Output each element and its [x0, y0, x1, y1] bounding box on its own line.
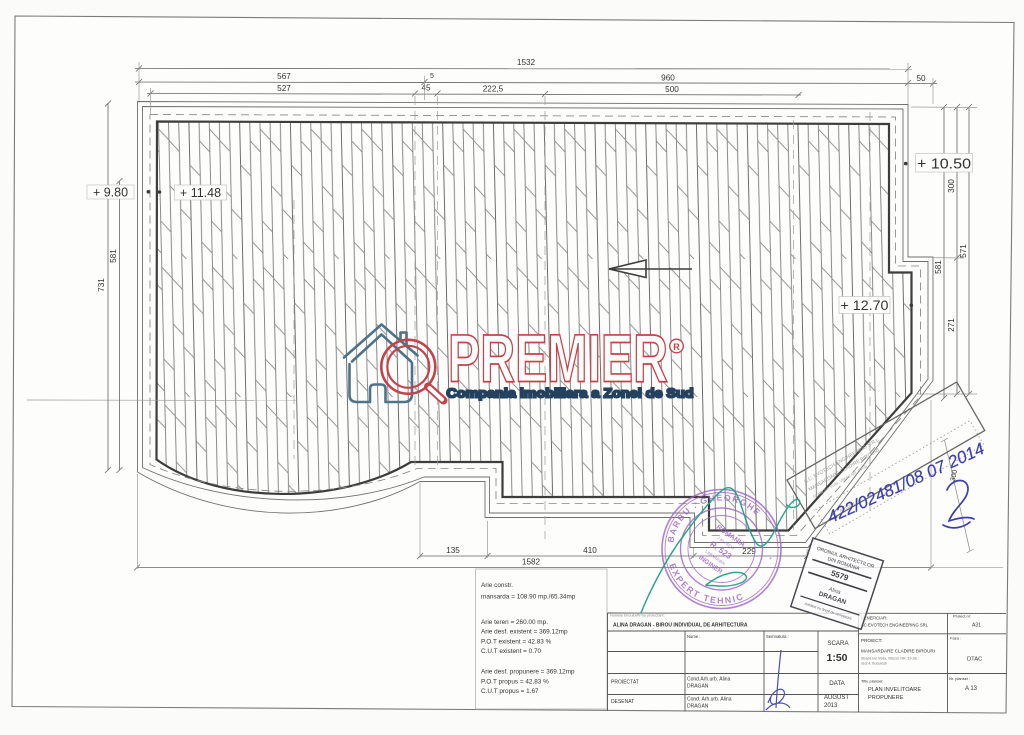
- svg-text:PROIECTAT: PROIECTAT: [611, 680, 639, 686]
- svg-text:SC EVOTECH ENGINEERING SRL: SC EVOTECH ENGINEERING SRL: [861, 623, 929, 628]
- svg-text:A 13: A 13: [965, 686, 978, 692]
- svg-text:Strada Ion Voda, Vitezul, NR.: Strada Ion Voda, Vitezul, NR. 19-28,: [861, 657, 917, 661]
- svg-text:222,5: 222,5: [483, 85, 504, 94]
- svg-text:Arie constr.: Arie constr.: [481, 582, 513, 589]
- svg-text:Proiect nr:: Proiect nr:: [953, 614, 971, 619]
- svg-text:Titlu plansei:: Titlu plansei:: [861, 679, 883, 684]
- svg-text:271: 271: [947, 318, 956, 332]
- svg-text:P.O.T propus = 42.83 %: P.O.T propus = 42.83 %: [481, 679, 549, 686]
- svg-text:DESENAT: DESENAT: [611, 699, 634, 705]
- svg-text:+ 11.48: + 11.48: [180, 186, 221, 200]
- svg-text:581: 581: [934, 260, 943, 274]
- svg-text:Nr. plansei :: Nr. plansei :: [949, 676, 970, 681]
- svg-text:1582: 1582: [522, 558, 541, 567]
- svg-text:Nume :: Nume :: [687, 634, 701, 639]
- svg-text:sect.4, Bucuresti: sect.4, Bucuresti: [861, 662, 887, 666]
- svg-text:500: 500: [665, 85, 679, 94]
- svg-text:Arie teren = 260.00 mp.: Arie teren = 260.00 mp.: [481, 619, 548, 626]
- svg-text:Compania imobiliara a Zonei de: Compania imobiliara a Zonei de Sud: [447, 386, 694, 401]
- svg-text:45: 45: [421, 84, 431, 93]
- svg-text:300: 300: [947, 179, 956, 193]
- svg-text:DRAGAN: DRAGAN: [687, 684, 709, 690]
- svg-text:DATA: DATA: [829, 680, 845, 687]
- svg-text:571: 571: [959, 244, 968, 258]
- svg-text:ALINA DRAGAN - BIROU INDIVIDUA: ALINA DRAGAN - BIROU INDIVIDUAL DE ARHIT…: [613, 623, 748, 629]
- svg-text:PLAN INVELITOARE: PLAN INVELITOARE: [868, 687, 921, 693]
- svg-text:1532: 1532: [517, 58, 536, 67]
- svg-text:527: 527: [277, 84, 291, 93]
- svg-text:Numele biroului/firma proiecta: Numele biroului/firma proiectant:: [610, 614, 665, 618]
- svg-text:1:50: 1:50: [826, 652, 847, 664]
- svg-text:410: 410: [583, 546, 597, 555]
- svg-text:Arie desf. propunere = 369.12m: Arie desf. propunere = 369.12mp: [481, 669, 575, 676]
- svg-text:Cond. Arh.urb. Alina: Cond. Arh.urb. Alina: [687, 697, 732, 703]
- svg-text:mansarda = 108.90 mp./65.34mp: mansarda = 108.90 mp./65.34mp: [481, 594, 576, 601]
- svg-text:MANSARDARE CLADIRE BIROURI: MANSARDARE CLADIRE BIROURI: [861, 649, 935, 654]
- svg-text:Faza :: Faza :: [950, 636, 961, 641]
- svg-text:R: R: [673, 342, 680, 352]
- svg-text:Cond.Arh.urb. Alina: Cond.Arh.urb. Alina: [687, 677, 731, 683]
- svg-text:731: 731: [97, 278, 106, 292]
- svg-text:P.O.T existent = 42.83 %: P.O.T existent = 42.83 %: [481, 639, 552, 646]
- svg-text:135: 135: [446, 546, 460, 555]
- svg-text:AUGUST: AUGUST: [824, 695, 849, 701]
- svg-text:Semnatura :: Semnatura :: [766, 634, 789, 639]
- svg-text:+ 10.50: + 10.50: [917, 156, 971, 173]
- svg-text:5: 5: [430, 73, 434, 80]
- svg-text:2013: 2013: [824, 703, 838, 709]
- svg-text:SCARA: SCARA: [827, 640, 849, 647]
- svg-text:+ 12.70: + 12.70: [841, 298, 889, 313]
- svg-text:567: 567: [277, 72, 291, 81]
- svg-text:PROIECT:: PROIECT:: [861, 638, 882, 643]
- svg-text:DRAGAN: DRAGAN: [687, 704, 709, 710]
- svg-text:DTAC: DTAC: [967, 657, 982, 663]
- svg-text:C.U.T propus = 1.67: C.U.T propus = 1.67: [481, 688, 539, 695]
- svg-text:A31: A31: [972, 623, 981, 629]
- svg-text:PROPUNERE: PROPUNERE: [868, 695, 904, 701]
- svg-text:C.U.T existent = 0.70: C.U.T existent = 0.70: [481, 648, 542, 655]
- svg-text:581: 581: [109, 249, 118, 263]
- svg-text:50: 50: [916, 74, 926, 83]
- svg-text:Arie desf. existent = 369.12mp: Arie desf. existent = 369.12mp: [481, 629, 568, 636]
- svg-text:+ 9.80: + 9.80: [93, 186, 128, 200]
- svg-text:960: 960: [661, 74, 675, 83]
